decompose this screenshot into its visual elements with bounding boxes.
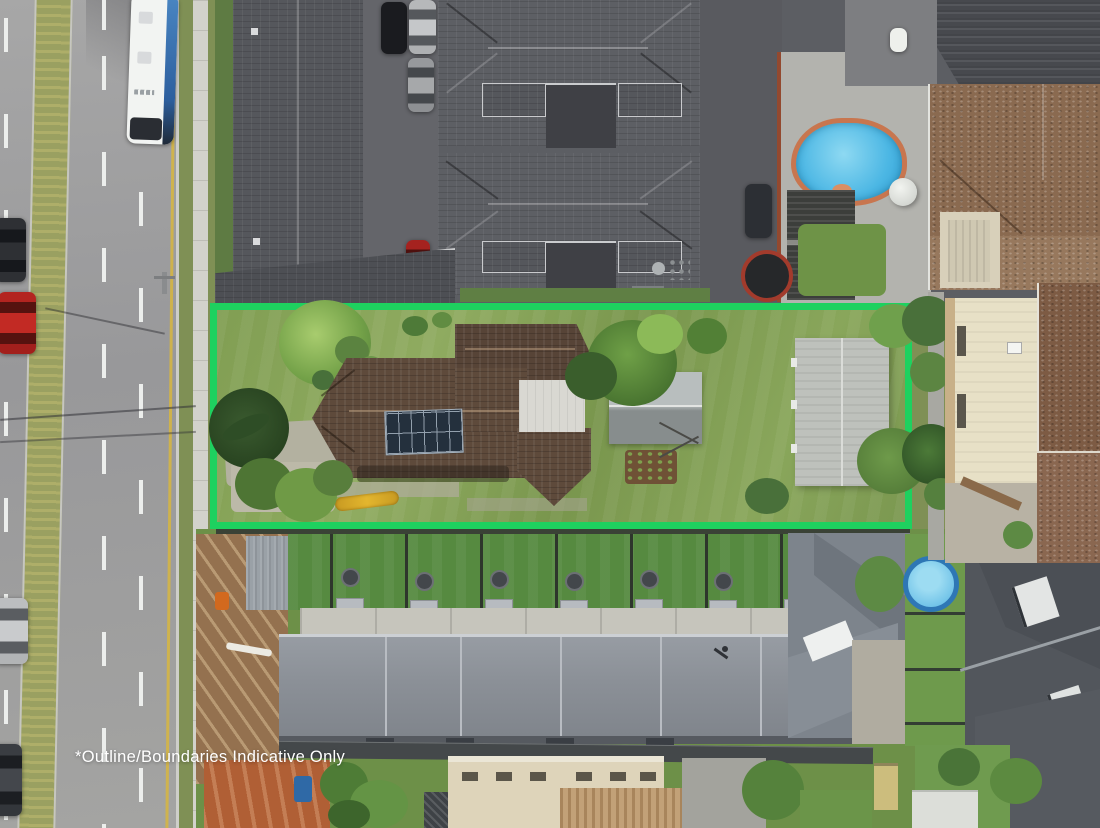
roof-ridge bbox=[488, 203, 648, 205]
shrub-row bbox=[402, 316, 428, 336]
porch-roof bbox=[482, 83, 546, 117]
bottom-lawn bbox=[800, 790, 872, 828]
lane-marking-left bbox=[4, 0, 8, 828]
bus-roof-hatch bbox=[137, 51, 151, 63]
orange-machine bbox=[215, 592, 229, 610]
window-slot bbox=[576, 772, 592, 781]
car-dark-2 bbox=[0, 744, 22, 816]
shed-door bbox=[791, 358, 797, 367]
watermark-text: *Outline/Boundaries Indicative Only bbox=[75, 748, 345, 767]
hedge-strip bbox=[460, 288, 710, 302]
bottom-tree-right bbox=[990, 758, 1042, 804]
roof-section-ridge bbox=[660, 637, 662, 736]
veranda-shadow bbox=[357, 466, 509, 482]
right-brown-roof bbox=[1037, 283, 1100, 451]
bus bbox=[126, 0, 178, 145]
house-hip-roof-1 bbox=[438, 0, 700, 146]
courtyard-bush bbox=[1003, 521, 1033, 549]
ac-unit bbox=[565, 572, 584, 591]
skylight bbox=[253, 238, 260, 245]
tree-dark-clump bbox=[565, 352, 617, 400]
parked-car-silver bbox=[408, 58, 434, 112]
rooftop-ac bbox=[1007, 342, 1022, 354]
rear-courtyard bbox=[945, 483, 1040, 563]
garage-door bbox=[948, 220, 990, 282]
ac-unit bbox=[341, 568, 360, 587]
car-silver bbox=[0, 598, 28, 664]
pool-lawn bbox=[798, 224, 886, 296]
roof-hip bbox=[446, 3, 498, 44]
rear-path bbox=[467, 498, 587, 511]
roof-ridge bbox=[488, 47, 648, 49]
cream-flat-roof-house bbox=[945, 298, 1047, 483]
bottom-vegetation bbox=[328, 800, 370, 828]
porch-roof bbox=[482, 241, 546, 273]
patio-strip bbox=[300, 608, 848, 634]
tree-light-clump bbox=[637, 314, 683, 354]
parked-car-silver bbox=[409, 0, 436, 54]
blue-bin bbox=[294, 776, 312, 802]
bus-roof-hatch bbox=[139, 11, 153, 23]
porch-roof bbox=[618, 83, 682, 117]
yard-fence bbox=[905, 722, 967, 725]
roof-hip bbox=[446, 160, 499, 199]
roof-ridge bbox=[1042, 84, 1044, 180]
power-pole-crossarm bbox=[154, 276, 175, 279]
right-margin-tree bbox=[910, 352, 950, 392]
townhouse-long-roof bbox=[233, 0, 363, 298]
yellow-shed bbox=[874, 763, 898, 810]
roof-hip bbox=[640, 3, 692, 44]
dark-roof-topright bbox=[937, 0, 1100, 86]
side-path-right bbox=[852, 640, 908, 744]
aerial-photo: *Outline/Boundaries Indicative Only bbox=[0, 0, 1100, 828]
townhouse-backyards bbox=[288, 534, 848, 610]
shed-ridge bbox=[841, 338, 843, 486]
tree-mid bbox=[687, 318, 727, 354]
skylight bbox=[251, 28, 258, 35]
shed-door bbox=[791, 400, 797, 409]
window-slot bbox=[640, 772, 656, 781]
garden-bed bbox=[625, 450, 677, 484]
roof-hip bbox=[640, 160, 693, 199]
parked-car-red bbox=[0, 292, 36, 354]
window-slot bbox=[496, 772, 512, 781]
ac-unit bbox=[640, 570, 659, 589]
shrub-row bbox=[432, 312, 452, 328]
window-slot bbox=[610, 772, 626, 781]
white-van bbox=[890, 28, 907, 52]
water-tank bbox=[889, 178, 917, 206]
trampoline bbox=[741, 250, 793, 302]
yard-fence bbox=[905, 668, 967, 671]
window-slot bbox=[530, 772, 546, 781]
window-slot bbox=[462, 772, 478, 781]
garage-recess bbox=[546, 83, 616, 148]
outdoor-chairs bbox=[668, 258, 690, 280]
roof-ridge bbox=[465, 348, 575, 350]
roof-section-ridge bbox=[385, 637, 387, 736]
ac-unit bbox=[415, 572, 434, 591]
parked-car-black bbox=[381, 2, 407, 54]
roof-section-ridge bbox=[560, 637, 562, 736]
bus-roof-vents bbox=[134, 89, 154, 95]
bottom-tree bbox=[742, 760, 804, 820]
roof-section-ridge bbox=[760, 637, 762, 736]
roof-section-ridge bbox=[460, 637, 462, 736]
yard-fence bbox=[905, 612, 967, 615]
window-slot bbox=[957, 394, 966, 428]
bottom-tree-right bbox=[938, 748, 980, 786]
tan-corrugated-roof bbox=[560, 788, 682, 828]
right-brown-roof-lower bbox=[1037, 451, 1100, 563]
hedge bbox=[855, 556, 905, 612]
kiddie-pool bbox=[903, 556, 959, 612]
lane-marking-mid bbox=[102, 0, 106, 828]
main-house-roof-joint bbox=[455, 368, 527, 432]
roof-ridge bbox=[297, 0, 299, 298]
ac-unit bbox=[714, 572, 733, 591]
white-building-bottom bbox=[912, 790, 978, 828]
modern-townhouse-roof bbox=[279, 634, 853, 744]
window-slot bbox=[957, 326, 966, 356]
solar-panel-array bbox=[384, 409, 463, 456]
bush-bottom-right bbox=[745, 478, 789, 514]
bus-windshield bbox=[130, 117, 163, 140]
outdoor-table bbox=[652, 262, 665, 275]
shed-door bbox=[791, 444, 797, 453]
parked-car-dark bbox=[745, 184, 772, 238]
roof-antenna-dot bbox=[722, 646, 728, 652]
parked-car-dark bbox=[0, 218, 26, 282]
ac-unit bbox=[490, 570, 509, 589]
tree-cluster bbox=[313, 460, 353, 496]
highlighted-property-boundary bbox=[210, 303, 912, 529]
